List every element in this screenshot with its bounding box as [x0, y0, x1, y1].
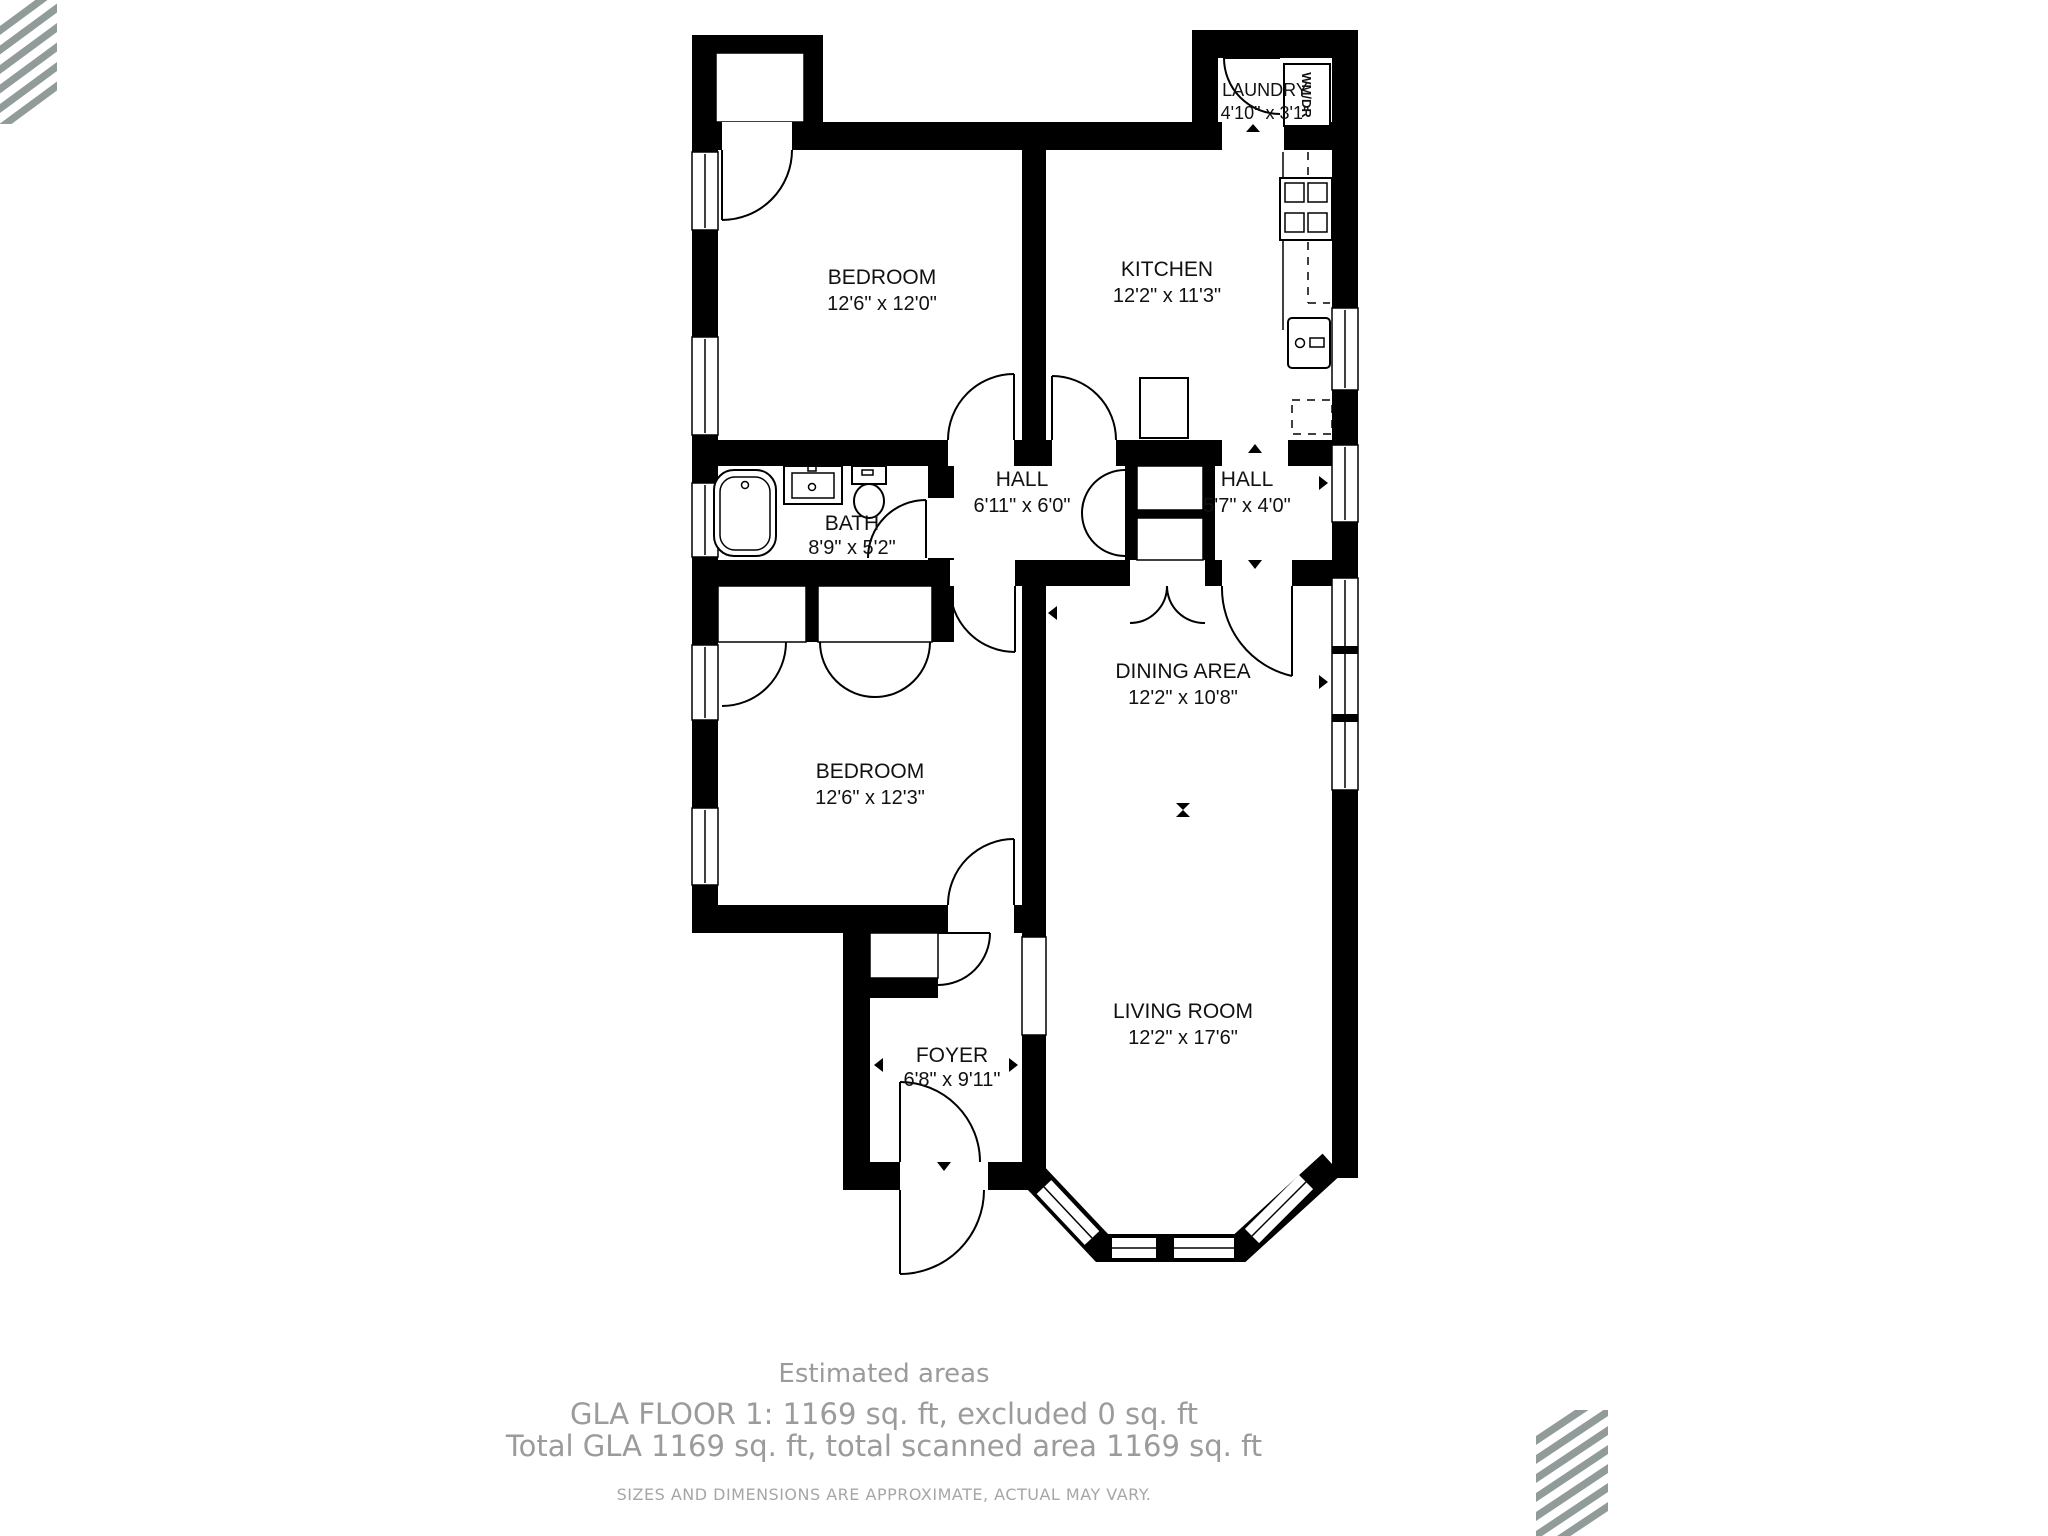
- brand-logo-top-left: [0, 0, 57, 133]
- room-label-kitchen: KITCHEN: [1121, 258, 1213, 281]
- fridge: [1140, 378, 1188, 438]
- hall-closet-upper: [1137, 466, 1203, 510]
- footer: Estimated areas GLA FLOOR 1: 1169 sq. ft…: [505, 1359, 1262, 1504]
- hall-closet-lower-opening: [1130, 560, 1205, 586]
- bedroom2-closet2-bifold: [820, 642, 930, 697]
- room-dims-laundry: 4'10" x 3'1": [1221, 103, 1310, 123]
- bedroom1-door-opening: [948, 440, 1014, 466]
- bedroom2-hall-door: [950, 586, 1015, 652]
- bedroom1-door: [948, 374, 1014, 440]
- floorplan-canvas: WM/DR LAUNDRY 4'10" x 3'1" BEDROOM 12'6"…: [0, 0, 2048, 1536]
- room-dims-dining-area: 12'2" x 10'8": [1128, 687, 1238, 709]
- room-label-bath: BATH: [825, 512, 879, 535]
- kitchen-door-opening: [1052, 440, 1116, 466]
- room-dims-bedroom1: 12'6" x 12'0": [827, 293, 937, 315]
- hall-closet-lower-doors: [1130, 586, 1205, 623]
- estimated-areas-title: Estimated areas: [778, 1359, 989, 1389]
- floorplan-page: WM/DR LAUNDRY 4'10" x 3'1" BEDROOM 12'6"…: [0, 0, 2048, 1536]
- room-dims-foyer: 6'8" x 9'11": [903, 1069, 1000, 1091]
- room-label-living-room: LIVING ROOM: [1113, 1000, 1253, 1023]
- bedroom2-closet-2: [818, 586, 932, 642]
- disclaimer-text: SIZES AND DIMENSIONS ARE APPROXIMATE, AC…: [617, 1485, 1152, 1504]
- window: [1332, 578, 1358, 790]
- hall-closet-upper-bifold: [1082, 470, 1125, 556]
- bedroom2-closet1-door: [722, 642, 786, 706]
- room-label-foyer: FOYER: [916, 1044, 988, 1067]
- bedroom1-closet: [716, 53, 804, 122]
- foyer-living-passthrough: [1022, 937, 1046, 1035]
- room-dims-bedroom2: 12'6" x 12'3": [815, 787, 925, 809]
- bedroom1-closet-door: [722, 150, 792, 220]
- window: [692, 152, 718, 230]
- room-dims-hall2: 5'7" x 4'0": [1203, 495, 1290, 517]
- room-dims-living-room: 12'2" x 17'6": [1128, 1027, 1238, 1049]
- bedroom2-hall-door-opening: [950, 560, 1015, 586]
- window: [692, 645, 718, 720]
- total-gla-line: Total GLA 1169 sq. ft, total scanned are…: [505, 1429, 1262, 1463]
- room-label-bedroom1: BEDROOM: [828, 266, 937, 289]
- room-label-dining-area: DINING AREA: [1115, 660, 1250, 683]
- window: [1332, 445, 1358, 522]
- room-label-bedroom2: BEDROOM: [816, 760, 925, 783]
- room-label-laundry: LAUNDRY: [1222, 80, 1308, 100]
- bedroom2-foyer-door: [948, 839, 1014, 905]
- bath-door-opening: [928, 498, 954, 558]
- stove: [1280, 178, 1332, 240]
- hall-closet-lower: [1137, 518, 1203, 560]
- window: [692, 337, 718, 435]
- room-label-hall1: HALL: [996, 468, 1049, 491]
- gla-floor-line: GLA FLOOR 1: 1169 sq. ft, excluded 0 sq.…: [570, 1397, 1198, 1431]
- bedroom2-closet-1: [718, 586, 806, 642]
- room-dims-hall1: 6'11" x 6'0": [973, 495, 1070, 517]
- window: [692, 808, 718, 885]
- foyer-closet-door: [938, 933, 990, 985]
- room-label-hall2: HALL: [1221, 468, 1274, 491]
- entry-door: [900, 1082, 984, 1274]
- room-dims-bath: 8'9" x 5'2": [808, 537, 895, 559]
- brand-logo-bottom-right: [1536, 1388, 1608, 1536]
- window: [1332, 308, 1358, 390]
- counter-dashed: [1292, 400, 1332, 434]
- foyer-closet: [870, 933, 938, 978]
- bedroom2-foyer-door-opening: [948, 905, 1014, 933]
- room-dims-kitchen: 12'2" x 11'3": [1113, 285, 1221, 307]
- kitchen-door: [1052, 376, 1116, 440]
- scan-markers: [703, 124, 1328, 1246]
